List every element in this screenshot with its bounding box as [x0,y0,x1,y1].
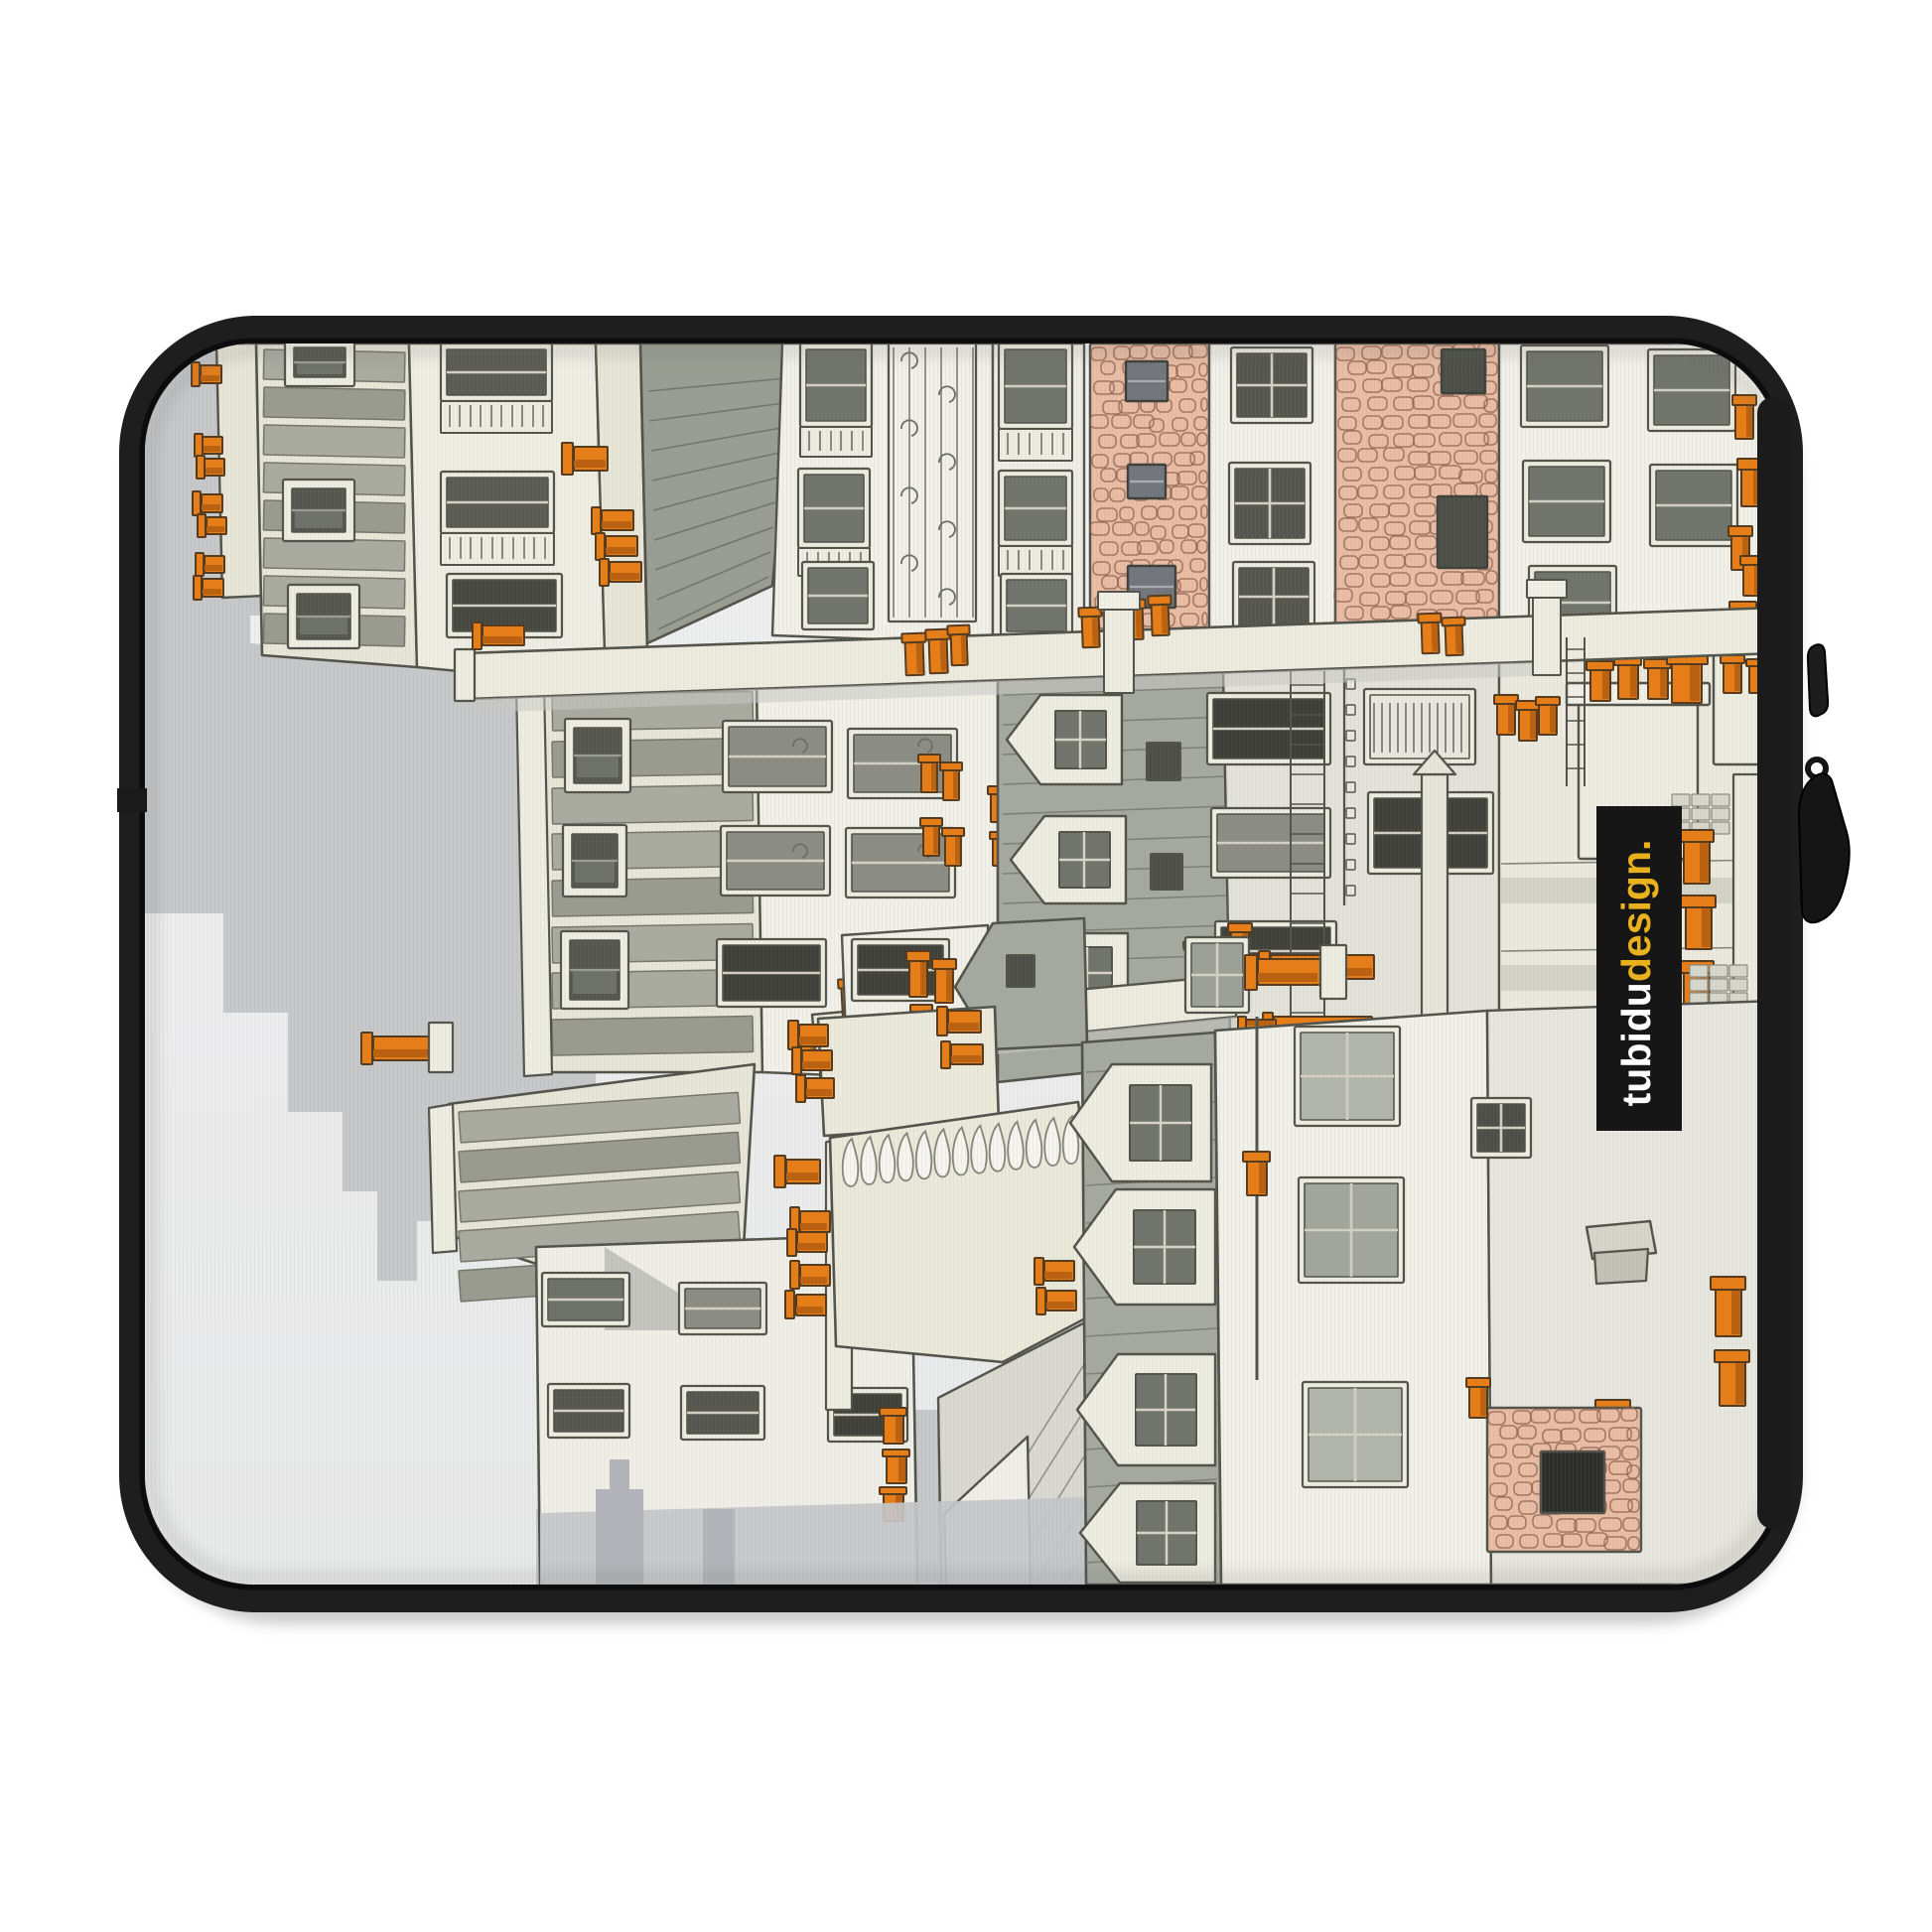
svg-text:tubidudesign.: tubidudesign. [1613,840,1659,1107]
